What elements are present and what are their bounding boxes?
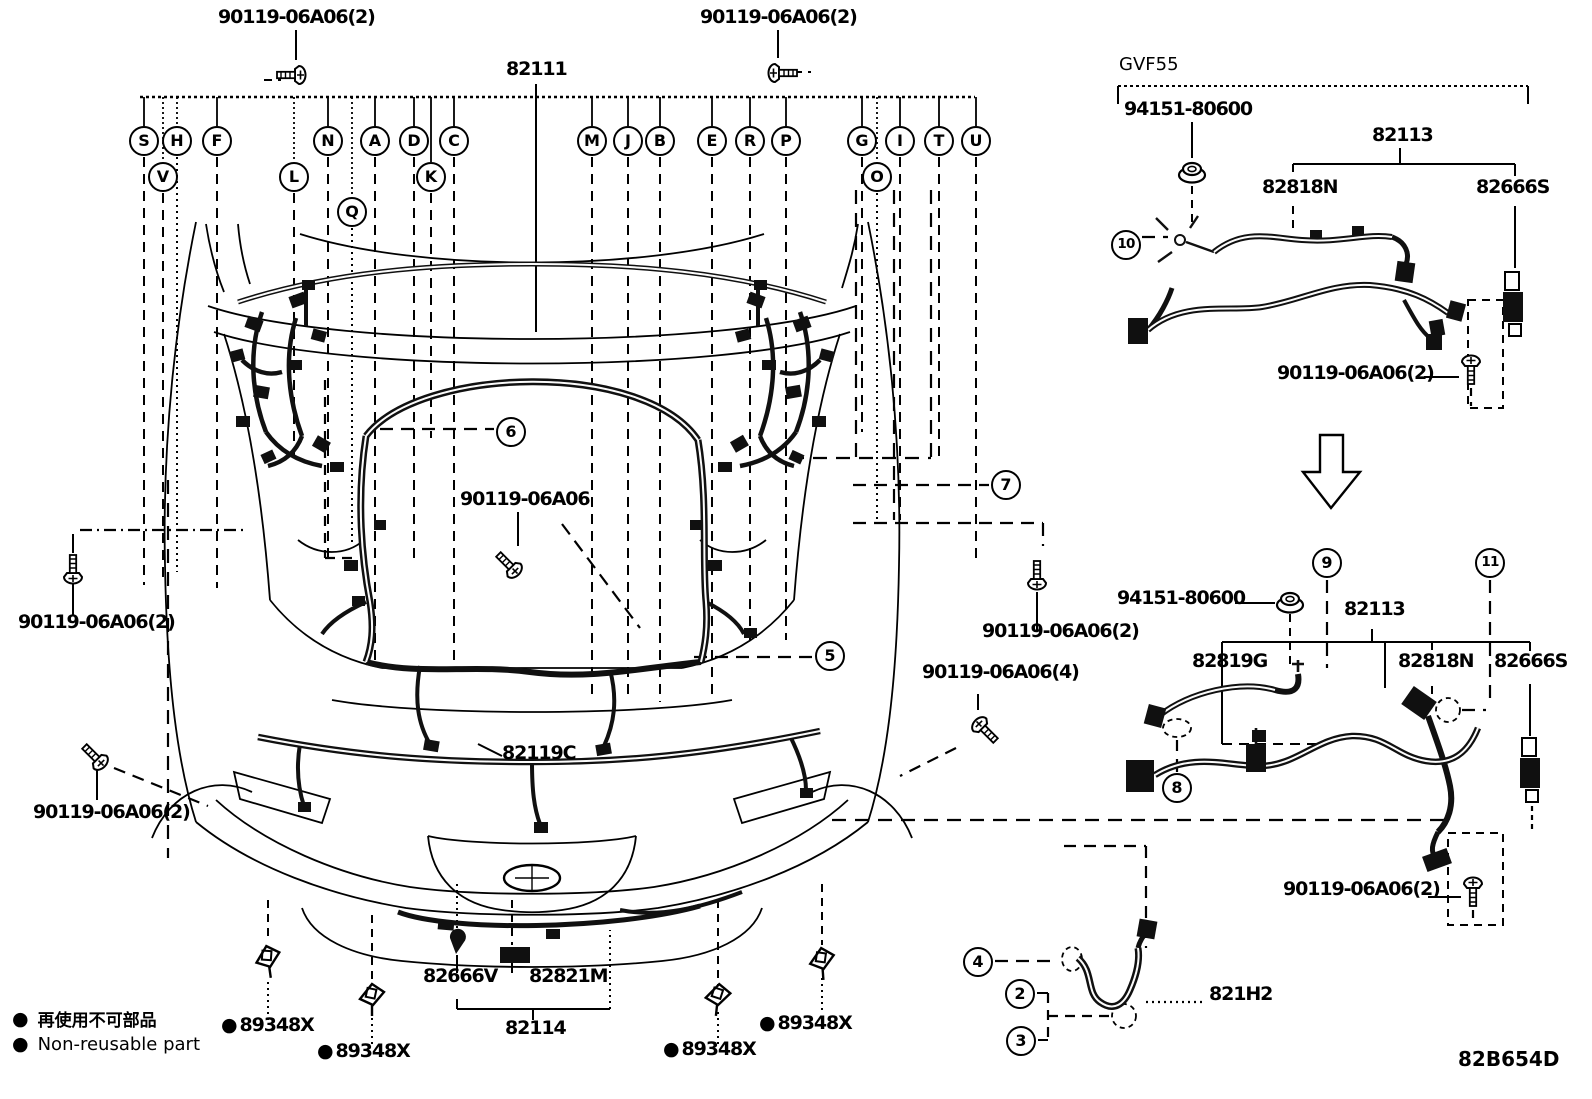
connector-circle-f: F [202, 126, 232, 156]
non-reusable-dot-icon: ● [317, 1042, 332, 1061]
callout-11: 11 [1475, 548, 1505, 578]
clamp-icon [254, 944, 282, 979]
part-number: 89348X [777, 1014, 851, 1033]
variant-label-gvf55: GVF55 [1119, 56, 1179, 74]
part-label-bolt-center: 90119-06A06 [460, 490, 589, 509]
part-label-89348x-3: ● 89348X [663, 1040, 756, 1059]
connector-circle-s: S [129, 126, 159, 156]
callout-4: 4 [963, 947, 993, 977]
callout-3: 3 [1006, 1026, 1036, 1056]
part-label-821h2: 821H2 [1209, 985, 1272, 1004]
nut-icon [1179, 163, 1205, 183]
connector-circle-b: B [645, 126, 675, 156]
connector-circle-h: H [162, 126, 192, 156]
connector-circle-r: R [735, 126, 765, 156]
part-label-bolt-left-2: 90119-06A06(2) [33, 803, 190, 822]
connector-circle-l: L [279, 162, 309, 192]
connector-circle-g: G [847, 126, 877, 156]
clamp-icon [360, 984, 384, 1016]
callout-10: 10 [1111, 230, 1141, 260]
callout-7: 7 [991, 470, 1021, 500]
connector-circle-k: K [416, 162, 446, 192]
part-label-82111: 82111 [506, 60, 567, 79]
non-reusable-dot-icon: ● [759, 1014, 774, 1033]
part-label-82113-upper: 82113 [1372, 126, 1433, 145]
part-label-82119c: 82119C [502, 744, 575, 763]
part-label-89348x-1: ● 89348X [221, 1016, 314, 1035]
drawing-number: 82B654D [1458, 1049, 1559, 1069]
diagram-line-art [0, 0, 1592, 1099]
part-label-82666s-upper: 82666S [1476, 178, 1549, 197]
legend-non-reusable-jp: ● 再使用不可部品 [12, 1006, 157, 1031]
part-label-94151-upper: 94151-80600 [1124, 100, 1252, 119]
part-label-bolt-left-1: 90119-06A06(2) [18, 613, 175, 632]
bolt-icon [78, 740, 111, 773]
connector-circle-q: Q [337, 197, 367, 227]
part-label-bolt-bottom-right: 90119-06A06(2) [1283, 880, 1440, 899]
non-reusable-dot-icon: ● [12, 1008, 29, 1030]
part-label-82818n-upper: 82818N [1262, 178, 1337, 197]
callout-5: 5 [815, 641, 845, 671]
part-label-82818n-lower: 82818N [1398, 652, 1473, 671]
part-label-82113-lower: 82113 [1344, 600, 1405, 619]
part-label-82666v: 82666V [423, 967, 497, 986]
connector-circle-v: V [148, 162, 178, 192]
bolt-icon [1462, 356, 1480, 385]
bolt-icon [277, 66, 306, 84]
part-number: 89348X [681, 1040, 755, 1059]
legend-text: 再使用不可部品 [38, 1006, 157, 1031]
connector-circle-i: I [885, 126, 915, 156]
connector-circle-p: P [771, 126, 801, 156]
connector-circle-u: U [961, 126, 991, 156]
part-label-89348x-4: ● 89348X [759, 1014, 852, 1033]
callout-9: 9 [1312, 548, 1342, 578]
part-label-94151-lower: 94151-80600 [1117, 589, 1245, 608]
part-label-82666s-lower: 82666S [1494, 652, 1567, 671]
part-label-82114: 82114 [505, 1019, 566, 1038]
connector-circle-j: J [613, 126, 643, 156]
connector-circle-e: E [697, 126, 727, 156]
main-harness [229, 264, 835, 963]
callout-leaders [73, 237, 1490, 1040]
section-arrow-icon [1303, 435, 1360, 508]
callout-8: 8 [1162, 773, 1192, 803]
bolt-icon [1464, 878, 1482, 907]
part-label-bolt-top-left: 90119-06A06(2) [218, 8, 375, 27]
part-label-bolt-4: 90119-06A06(4) [922, 663, 1079, 682]
bolt-icon [1028, 561, 1046, 590]
bolt-icon [64, 555, 82, 584]
callout-6: 6 [496, 417, 526, 447]
car-body-outline [152, 222, 912, 967]
part-label-82821m: 82821M [529, 967, 607, 986]
connector-circle-m: M [577, 126, 607, 156]
part-label-82819g: 82819G [1192, 652, 1267, 671]
nut-icon [1277, 593, 1303, 613]
part-label-89348x-2: ● 89348X [317, 1042, 410, 1061]
connector-circle-t: T [924, 126, 954, 156]
connector-circle-c: C [439, 126, 469, 156]
legend-text: Non-reusable part [38, 1034, 200, 1055]
non-reusable-dot-icon: ● [12, 1033, 29, 1055]
connector-circle-o: O [862, 162, 892, 192]
part-number: 89348X [335, 1042, 409, 1061]
connector-circle-n: N [313, 126, 343, 156]
connector-circle-a: A [360, 126, 390, 156]
bolt-icon [769, 64, 798, 82]
bolt-icon [969, 714, 1002, 747]
non-reusable-dot-icon: ● [221, 1016, 236, 1035]
part-label-bolt-gvf55: 90119-06A06(2) [1277, 364, 1434, 383]
part-label-bolt-mid-right: 90119-06A06(2) [982, 622, 1139, 641]
bolt-icon [492, 548, 525, 581]
legend-non-reusable-en: ● Non-reusable part [12, 1033, 200, 1055]
clamp-icon [809, 947, 835, 981]
callout-2: 2 [1005, 979, 1035, 1009]
parts-diagram-page: 90119-06A06(2) 90119-06A06(2) 82111 GVF5… [0, 0, 1592, 1099]
non-reusable-dot-icon: ● [663, 1040, 678, 1059]
connector-circle-d: D [399, 126, 429, 156]
clamp-icon [704, 983, 731, 1017]
part-label-bolt-top-right: 90119-06A06(2) [700, 8, 857, 27]
hardware-icons [64, 64, 1482, 1017]
part-number: 89348X [239, 1016, 313, 1035]
